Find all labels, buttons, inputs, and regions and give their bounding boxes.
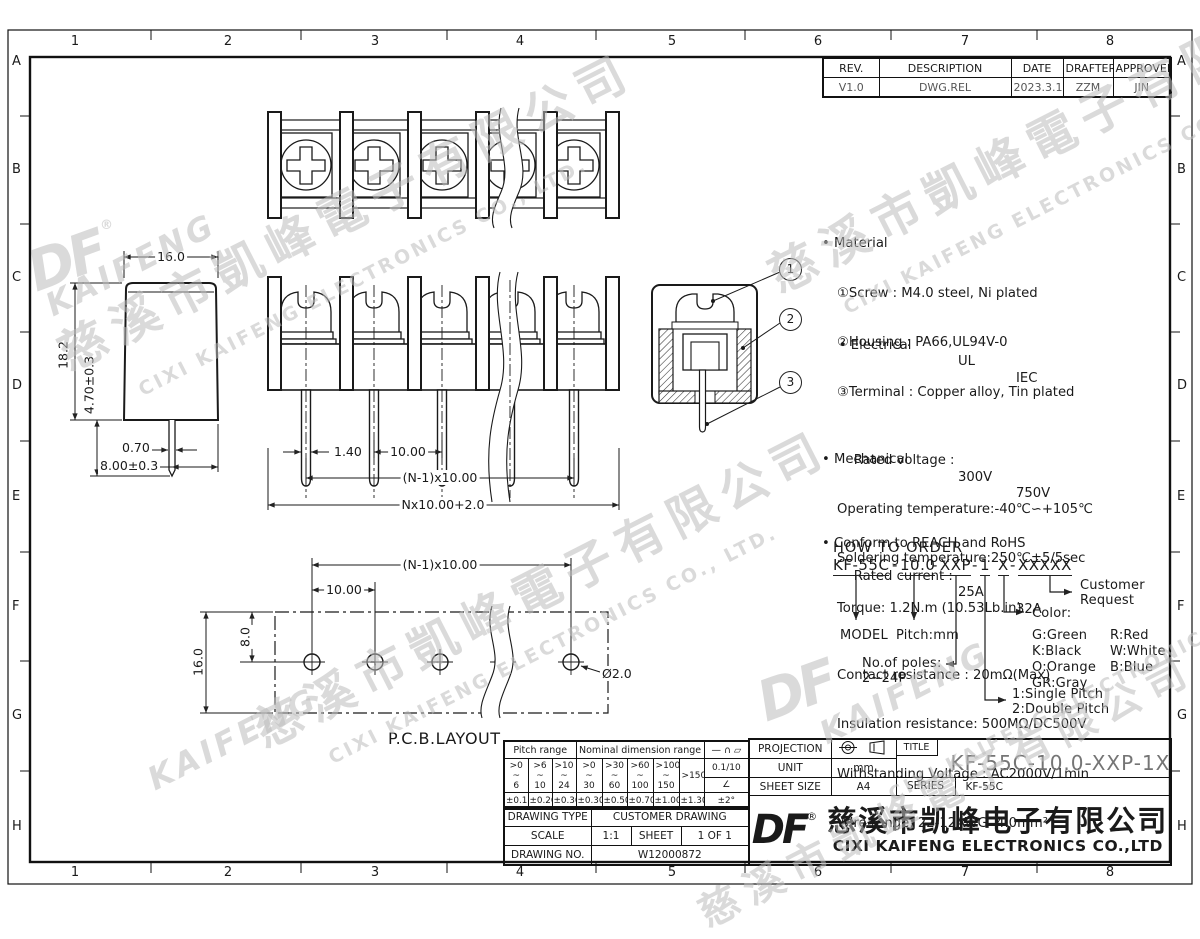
gr: 1 (71, 865, 79, 880)
tol-range: >30 ~ 60 (602, 759, 627, 793)
order-code-custom: XXXXX (1018, 556, 1072, 576)
drawing-title: KF-55C-10.0-XXP-1X (951, 751, 1169, 775)
drawing-no-label: DRAWING NO. (504, 846, 591, 866)
drawing-type-label: DRAWING TYPE (504, 807, 591, 827)
unit-value: mm (831, 759, 896, 778)
gr: C (12, 270, 21, 285)
gr: 7 (961, 865, 969, 880)
color-option: R:Red (1110, 628, 1149, 643)
tol-header: Nominal dimension range (576, 741, 704, 759)
order-code-poles: XXP (940, 556, 971, 576)
tolerance-table: Pitch range Nominal dimension range — ∩ … (503, 740, 750, 810)
dim-label: 16.0 (155, 249, 187, 264)
angle-icon: ∠ (705, 777, 749, 792)
dim-label: 8.0 (238, 625, 253, 649)
gr: A (1177, 54, 1186, 69)
dim-label: Nx10.00+2.0 (400, 497, 487, 512)
scale-label: SCALE (504, 827, 591, 846)
rev-header: REV. (823, 58, 879, 78)
order-code-sep: - (972, 556, 977, 574)
material-title: Material (822, 236, 1182, 253)
rev-header: APPROVER (1113, 58, 1171, 78)
series-label: SERIES (897, 778, 956, 795)
gr: G (12, 708, 22, 723)
tol-range: >0 ~ 6 (504, 759, 528, 793)
company-cell: DF® 慈溪市凯峰电子有限公司 CIXI KAIFENG ELECTRONICS… (749, 796, 1171, 866)
rev-value: ZZM (1063, 78, 1113, 98)
title-cell: TITLE KF-55C-10.0-XXP-1X (896, 739, 1171, 778)
color-option: W:White (1110, 644, 1166, 659)
gr: 2 (224, 34, 232, 49)
order-code-pitch: 10.0 (900, 556, 935, 576)
order-code-sep: - (932, 556, 937, 574)
order-code-color: X (998, 556, 1009, 576)
gr: E (12, 489, 20, 504)
company-name-cn: 慈溪市凯峰电子有限公司 (827, 804, 1168, 838)
series-value: KF-55C (956, 781, 1003, 793)
tol-range: >150 (679, 759, 704, 793)
gr: 4 (516, 865, 524, 880)
gr: 3 (371, 865, 379, 880)
gr: 3 (371, 34, 379, 49)
balloon-1: 1 (779, 258, 802, 281)
sheet-size-value: A4 (831, 778, 896, 796)
gr: 4 (516, 34, 524, 49)
gr: 5 (668, 865, 676, 880)
tol-range: >60 ~ 100 (627, 759, 653, 793)
gr: 5 (668, 34, 676, 49)
company-logo: DF® (752, 810, 818, 850)
electrical-col-ul: UL (958, 354, 975, 371)
gr: A (12, 54, 21, 69)
unit-label: UNIT (749, 759, 831, 778)
gr: D (12, 378, 22, 393)
color-option: K:Black (1032, 644, 1081, 659)
balloon-3: 3 (779, 371, 802, 394)
tol-range: >10 ~ 24 (552, 759, 576, 793)
order-double-pitch: 2:Double Pitch (1012, 702, 1109, 717)
dim-label: 16.0 (191, 646, 206, 678)
company-name-en: CIXI KAIFENG ELECTRONICS CO.,LTD (833, 837, 1163, 855)
scale-value: 1:1 (591, 827, 631, 846)
dim-label: 1.40 (332, 444, 364, 459)
order-code-sep: - (892, 556, 897, 574)
order-customer-1: Customer (1080, 578, 1145, 593)
drawing-no-value: W12000872 (591, 846, 749, 866)
gr: F (12, 599, 19, 614)
tol-flatness: 0.1/10 (705, 759, 749, 777)
gr: 1 (71, 34, 79, 49)
dim-label: 10.00 (388, 444, 428, 459)
revision-table: REV. DESCRIPTION DATE DRAFTER APPROVER V… (822, 57, 1172, 98)
tol-range: >6 ~ 10 (528, 759, 552, 793)
order-code-pitchtype: 1 (980, 556, 990, 576)
spec-line: Insulation resistance: 500MΩ/DC500V (837, 717, 1182, 734)
dim-label: 10.00 (324, 582, 364, 597)
order-color-title: Color: (1032, 606, 1071, 621)
gr: 6 (814, 34, 822, 49)
gr: B (1177, 162, 1186, 177)
rev-header: DRAFTER (1063, 58, 1113, 78)
rev-value: 2023.3.17 (1011, 78, 1063, 98)
electrical-title: Electrical (839, 338, 912, 353)
sheet-label: SHEET (631, 827, 681, 846)
electrical-col-iec: IEC (1016, 371, 1037, 388)
sheet-size-label: SHEET SIZE (749, 778, 831, 796)
pcb-layout-label: P.C.B.LAYOUT (388, 729, 501, 748)
gr: H (12, 819, 22, 834)
order-model-label: MODEL (840, 628, 888, 643)
tol-header: Pitch range (504, 741, 576, 759)
title-block: PROJECTION TITLE KF-55C-10.0-XXP-1X UNIT… (748, 738, 1172, 866)
dim-label: Ø2.0 (600, 666, 634, 681)
registered-mark: ® (806, 810, 817, 823)
title-label: TITLE (897, 740, 938, 756)
mechanical-title: Mechanical (822, 452, 1182, 469)
rev-value: DWG.REL (879, 78, 1011, 98)
rev-value: V1.0 (823, 78, 879, 98)
gr: 8 (1106, 34, 1114, 49)
dim-label: 0.70 (120, 440, 152, 455)
order-customer-2: Request (1080, 593, 1134, 608)
dim-label: (N-1)x10.00 (401, 557, 480, 572)
tol-symbols-header: — ∩ ▱ (704, 741, 749, 759)
color-option: B:Blue (1110, 660, 1153, 675)
drawing-info-table: DRAWING TYPE CUSTOMER DRAWING SCALE 1:1 … (503, 806, 750, 866)
gr: 8 (1106, 865, 1114, 880)
order-poles-range: 2~24P (862, 671, 907, 686)
order-code-sep: - (1010, 556, 1015, 574)
order-code-model: KF-55C (833, 556, 889, 576)
color-option: O:Orange (1032, 660, 1096, 675)
color-option: GR:Gray (1032, 676, 1088, 691)
dim-label: 18.2 (56, 339, 71, 371)
dim-label: 8.00±0.3 (98, 458, 160, 473)
projection-symbol-icon (831, 739, 896, 759)
rev-header: DATE (1011, 58, 1063, 78)
projection-label: PROJECTION (749, 739, 831, 759)
engineering-drawing-page: { "grid": {"cols":["1","2","3","4","5","… (0, 0, 1200, 910)
drawing-type-value: CUSTOMER DRAWING (591, 807, 749, 827)
balloon-2: 2 (779, 308, 802, 331)
gr: B (12, 162, 21, 177)
order-poles-label: No.of poles: (862, 656, 942, 671)
color-option: G:Green (1032, 628, 1087, 643)
rev-header: DESCRIPTION (879, 58, 1011, 78)
how-to-order-title: HOW TO ORDER (833, 540, 963, 556)
rev-value: JIN (1113, 78, 1171, 98)
tol-symbol-cell: 0.1/10 ∠ (704, 759, 749, 793)
dim-label: (N-1)x10.00 (401, 470, 480, 485)
gr: 6 (814, 865, 822, 880)
gr: 2 (224, 865, 232, 880)
order-pitch-label: Pitch:mm (896, 628, 959, 643)
sheet-value: 1 OF 1 (681, 827, 749, 846)
tol-range: >0 ~ 30 (576, 759, 602, 793)
gr: 7 (961, 34, 969, 49)
tol-range: >100 ~ 150 (653, 759, 679, 793)
dim-label: 4.70±0.3 (82, 354, 97, 416)
